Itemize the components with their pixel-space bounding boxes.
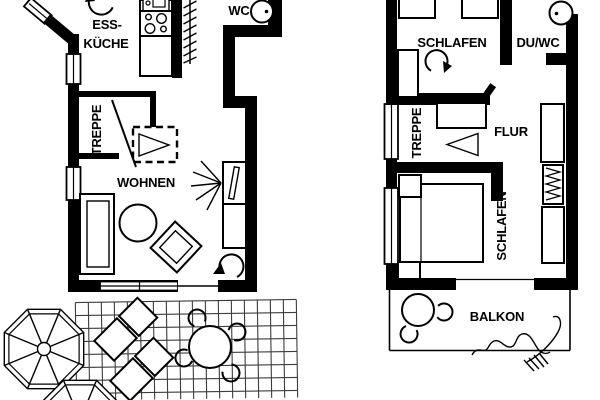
window <box>385 188 399 264</box>
bed-icon <box>462 0 498 18</box>
washbasin-icon <box>550 2 573 25</box>
wall <box>534 278 578 290</box>
bath-label: DU/WC <box>516 35 560 50</box>
washbasin-icon <box>251 1 273 23</box>
balcony-label: BALKON <box>470 309 524 324</box>
stove-icon <box>140 11 172 36</box>
bedroom2-label: SCHLAFEN <box>494 191 509 260</box>
armchair-icon <box>151 222 202 273</box>
parasol-icon <box>4 309 83 388</box>
door-swing-arc <box>213 254 243 277</box>
door-swing-arc <box>85 0 113 15</box>
bedroom1-label: SCHLAFEN <box>417 35 486 50</box>
plant-sketch <box>472 316 560 371</box>
kitchen-counter <box>140 0 172 76</box>
wall <box>566 14 578 290</box>
hall-label: FLUR <box>494 124 529 139</box>
bed-icon <box>399 0 435 18</box>
tv-beam-lines <box>191 161 221 210</box>
nightstand-icon <box>399 175 421 197</box>
tv-shelf-icon <box>191 161 246 248</box>
wall <box>386 0 566 201</box>
chair-icon <box>401 326 418 342</box>
terrace-door-opening <box>178 280 218 293</box>
chair-icon <box>223 365 240 382</box>
stair-direction-arrow <box>447 134 478 156</box>
floor-plan-drawing: ESS- KÜCHE WC TREPPE WOHNEN <box>0 0 600 400</box>
living-label: WOHNEN <box>117 175 175 190</box>
upper-floor-plan: SCHLAFEN DU/WC TREPPE FLUR SCHLAFEN BALK… <box>385 0 579 371</box>
window <box>100 282 178 291</box>
wardrobe-icon <box>398 50 418 97</box>
double-bed-icon <box>398 175 483 279</box>
kitchen-label-line2: KÜCHE <box>83 36 129 51</box>
round-table-icon <box>120 205 157 242</box>
stairs-label: TREPPE <box>89 104 104 155</box>
stair-direction-arrow <box>139 134 169 156</box>
cabinet-icon <box>541 104 564 162</box>
balcony <box>390 278 571 371</box>
window <box>67 167 81 200</box>
floor-plan-svg: ESS- KÜCHE WC TREPPE WOHNEN <box>0 0 600 400</box>
cabinet-icon <box>542 207 564 263</box>
door-swing-arc <box>426 50 452 73</box>
sofa-icon <box>80 194 114 274</box>
wc-label: WC <box>228 3 250 18</box>
terrace <box>4 298 297 400</box>
nightstand-icon <box>398 262 420 279</box>
ground-floor-plan: ESS- KÜCHE WC TREPPE WOHNEN <box>24 0 282 293</box>
wardrobe-rail-icon <box>543 165 563 204</box>
closet-icon <box>437 103 486 128</box>
garden-table-icon <box>175 310 245 382</box>
balcony-table-icon <box>402 294 434 326</box>
window <box>385 104 399 159</box>
stairs-label: TREPPE <box>409 107 424 158</box>
chair-icon <box>437 303 452 320</box>
chair-icon <box>189 310 206 327</box>
hatch-exterior-stairs <box>184 0 197 64</box>
window <box>67 54 81 84</box>
kitchen-label-line1: ESS- <box>92 17 122 32</box>
